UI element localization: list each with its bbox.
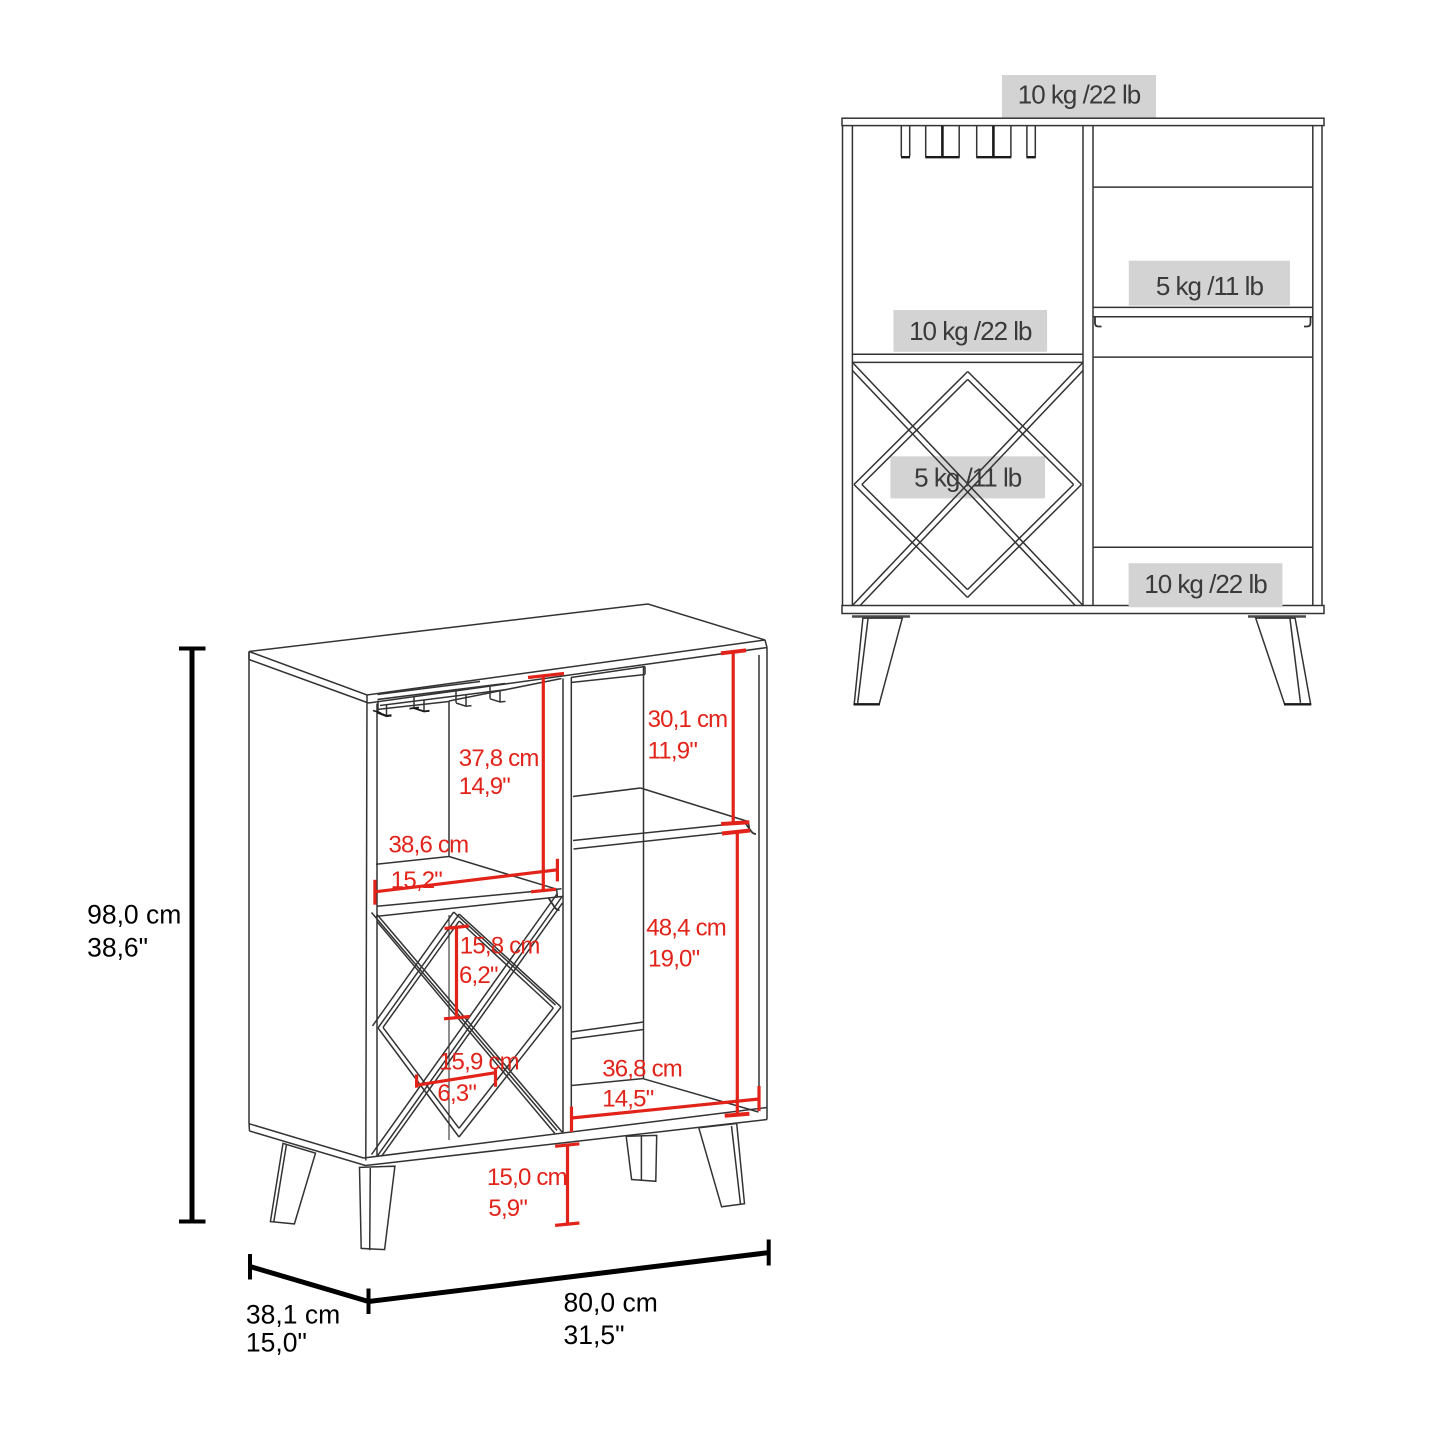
svg-text:10 kg /22 lb: 10 kg /22 lb	[909, 316, 1032, 346]
svg-text:14,9": 14,9"	[459, 773, 511, 800]
svg-text:37,8 cm: 37,8 cm	[459, 745, 539, 772]
svg-text:6,3": 6,3"	[437, 1080, 476, 1107]
svg-text:10 kg /22 lb: 10 kg /22 lb	[1018, 80, 1141, 110]
svg-text:15,0": 15,0"	[246, 1328, 307, 1358]
svg-text:15,2": 15,2"	[391, 867, 443, 894]
svg-text:14,5": 14,5"	[602, 1086, 654, 1113]
svg-text:5 kg /11 lb: 5 kg /11 lb	[914, 463, 1022, 493]
svg-text:36,8 cm: 36,8 cm	[602, 1056, 682, 1083]
svg-text:38,6 cm: 38,6 cm	[389, 832, 469, 859]
svg-text:11,9": 11,9"	[648, 738, 698, 765]
svg-text:15,9 cm: 15,9 cm	[439, 1049, 519, 1076]
svg-text:31,5": 31,5"	[564, 1320, 625, 1350]
svg-text:30,1 cm: 30,1 cm	[648, 706, 728, 733]
svg-text:80,0 cm: 80,0 cm	[564, 1288, 658, 1318]
svg-text:38,1 cm: 38,1 cm	[246, 1300, 340, 1330]
svg-text:98,0 cm: 98,0 cm	[87, 900, 181, 930]
svg-text:15,0 cm: 15,0 cm	[487, 1164, 567, 1191]
svg-text:15,8 cm: 15,8 cm	[460, 933, 540, 960]
svg-text:48,4 cm: 48,4 cm	[646, 915, 726, 942]
svg-text:5 kg /11 lb: 5 kg /11 lb	[1156, 271, 1264, 301]
svg-text:19,0": 19,0"	[648, 946, 700, 973]
svg-text:38,6": 38,6"	[87, 933, 148, 963]
svg-text:5,9": 5,9"	[488, 1195, 527, 1222]
svg-text:6,2": 6,2"	[459, 962, 498, 989]
svg-text:10 kg /22 lb: 10 kg /22 lb	[1144, 569, 1267, 599]
